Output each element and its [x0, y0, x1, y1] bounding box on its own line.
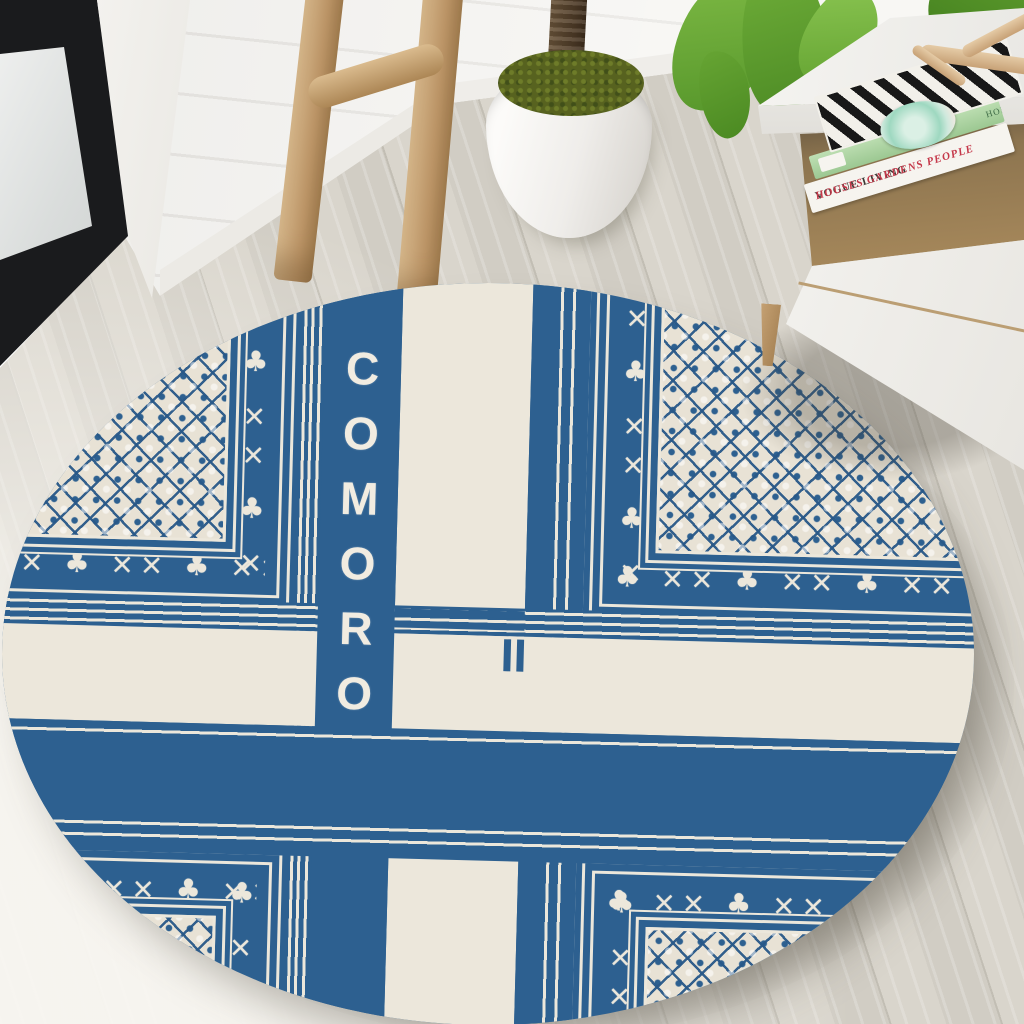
- rug-quadrant-bottom-left: ♣ ×× ♣ ×× ♣ ×× ♣ ×× ♣ ×× ♣ ×× ♣ ×× ♣ ×× …: [2, 847, 272, 1024]
- white-nightstand: VOGUE LIVING HOUSES GARDENS PEOPLE HOMEB…: [752, 8, 1024, 478]
- room-scene: ♣ ×× ♣ ×× ♣ ×× ♣ ×× ♣ ×× ♣ ×× ♣ ×× ♣ ×× …: [0, 0, 1024, 1024]
- planter-moss: [498, 50, 644, 116]
- rug-cross-dash: [503, 639, 511, 671]
- rug-clover-field: [633, 927, 974, 1024]
- rug-quadrant-top-left: ♣ ×× ♣ ×× ♣ ×× ♣ ×× ♣ ×× ♣ ×× ♣ ×× ♣ ×× …: [2, 283, 298, 598]
- rug-quadrant-bottom-right: ♣ ×× ♣ ×× ♣ ×× ♣ ×× ♣ ×× ♣ ×× ♣ ×× ♣ ×× …: [576, 871, 974, 1024]
- rug-border-motifs: ♣ ×× ♣ ×× ♣ ×× ♣ ×× ♣ ×× ♣ ×× ♣ ×× ♣ ×× …: [2, 532, 265, 589]
- rug-border-motifs: ♣ ×× ♣ ×× ♣ ×× ♣ ×× ♣ ×× ♣ ×× ♣ ×× ♣ ×× …: [614, 556, 974, 616]
- rug-clover-field: [2, 903, 216, 1024]
- rug-border-motifs: ♣ ×× ♣ ×× ♣ ×× ♣ ×× ♣ ×× ♣ ×× ♣ ×× ♣ ×× …: [2, 856, 257, 913]
- rug-border-motifs: ♣ ×× ♣ ×× ♣ ×× ♣ ×× ♣ ×× ♣ ×× ♣ ×× ♣ ×× …: [229, 283, 289, 583]
- nightstand-leg: [754, 303, 784, 367]
- rug-border-motifs: ♣ ×× ♣ ×× ♣ ×× ♣ ×× ♣ ×× ♣ ×× ♣ ×× ♣ ×× …: [586, 886, 643, 1024]
- rug-cross-dash: [516, 640, 524, 672]
- book-label-chip: [818, 151, 847, 172]
- rug-clover-field: [2, 283, 241, 542]
